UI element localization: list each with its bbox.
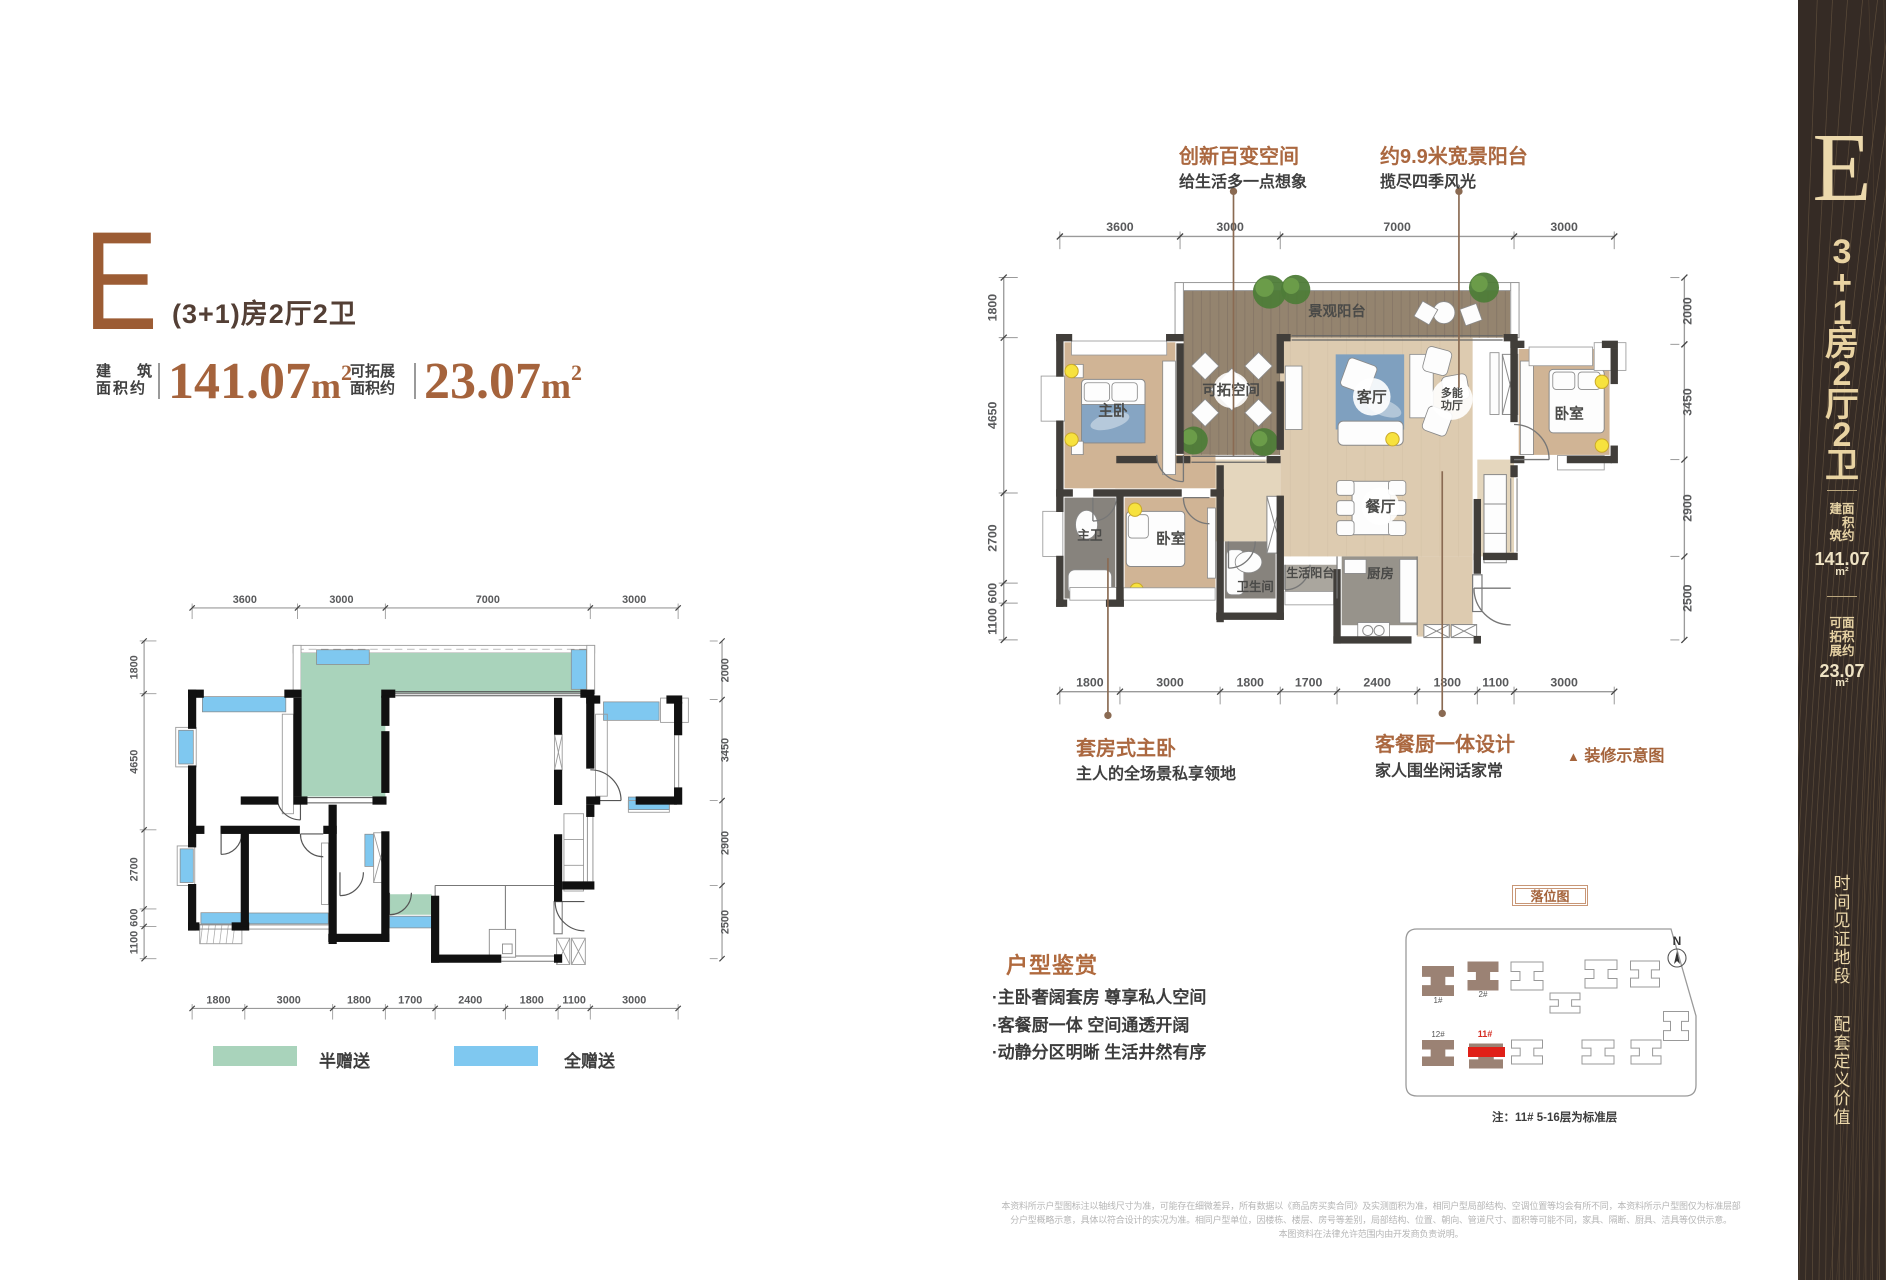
svg-text:2#: 2#	[1479, 990, 1488, 999]
svg-text:3450: 3450	[719, 738, 731, 762]
svg-text:1800: 1800	[986, 293, 1000, 321]
svg-text:可拓空间: 可拓空间	[1203, 381, 1260, 399]
svg-text:1800: 1800	[520, 995, 544, 1007]
svg-text:2700: 2700	[986, 524, 1000, 552]
svg-text:1100: 1100	[562, 995, 586, 1007]
svg-text:7000: 7000	[1384, 220, 1412, 234]
svg-text:3600: 3600	[233, 594, 257, 606]
svg-text:3000: 3000	[329, 594, 353, 606]
svg-text:1700: 1700	[1295, 675, 1323, 689]
svg-text:2500: 2500	[1681, 584, 1695, 612]
svg-text:2400: 2400	[1364, 675, 1392, 689]
svg-text:主卧: 主卧	[1098, 401, 1128, 419]
svg-text:2900: 2900	[719, 831, 731, 855]
svg-text:11#: 11#	[1478, 1029, 1493, 1039]
svg-text:1#: 1#	[1434, 996, 1443, 1005]
svg-text:卧室: 卧室	[1555, 404, 1585, 422]
svg-text:2900: 2900	[1681, 494, 1695, 522]
svg-text:3000: 3000	[1551, 675, 1579, 689]
svg-text:2700: 2700	[129, 857, 141, 881]
svg-text:2000: 2000	[1681, 297, 1695, 325]
svg-text:4650: 4650	[129, 750, 141, 774]
svg-text:1800: 1800	[1434, 675, 1462, 689]
svg-text:1800: 1800	[1076, 675, 1104, 689]
svg-text:生活阳台: 生活阳台	[1286, 565, 1334, 580]
svg-text:3000: 3000	[622, 995, 646, 1007]
svg-text:600: 600	[986, 582, 1000, 603]
svg-text:2500: 2500	[719, 910, 731, 934]
svg-text:功厅: 功厅	[1441, 398, 1463, 412]
svg-text:客厅: 客厅	[1356, 387, 1387, 405]
svg-text:餐厅: 餐厅	[1366, 497, 1396, 515]
svg-text:4650: 4650	[986, 401, 1000, 429]
svg-text:3000: 3000	[1217, 220, 1245, 234]
svg-text:1100: 1100	[1482, 675, 1509, 689]
svg-text:3600: 3600	[1106, 220, 1134, 234]
svg-text:1800: 1800	[1237, 675, 1265, 689]
svg-text:12#: 12#	[1431, 1030, 1445, 1039]
svg-text:卧室: 卧室	[1156, 529, 1186, 547]
svg-text:1100: 1100	[986, 608, 1000, 635]
svg-text:3450: 3450	[1681, 388, 1695, 416]
svg-text:1800: 1800	[129, 655, 141, 679]
svg-text:7000: 7000	[476, 594, 500, 606]
svg-text:景观阳台: 景观阳台	[1308, 301, 1365, 319]
svg-text:2000: 2000	[719, 658, 731, 682]
svg-text:3000: 3000	[277, 995, 301, 1007]
svg-text:600: 600	[129, 909, 141, 927]
svg-text:1800: 1800	[347, 995, 371, 1007]
svg-text:1100: 1100	[129, 931, 141, 955]
svg-text:2400: 2400	[458, 995, 482, 1007]
svg-text:3000: 3000	[622, 594, 646, 606]
svg-text:N: N	[1673, 934, 1682, 948]
svg-text:3000: 3000	[1156, 675, 1184, 689]
svg-text:1800: 1800	[206, 995, 230, 1007]
svg-text:1700: 1700	[398, 995, 422, 1007]
svg-text:厨房: 厨房	[1367, 565, 1394, 581]
svg-text:卫生间: 卫生间	[1237, 578, 1274, 593]
svg-text:主卫: 主卫	[1077, 527, 1103, 542]
svg-text:3000: 3000	[1551, 220, 1579, 234]
